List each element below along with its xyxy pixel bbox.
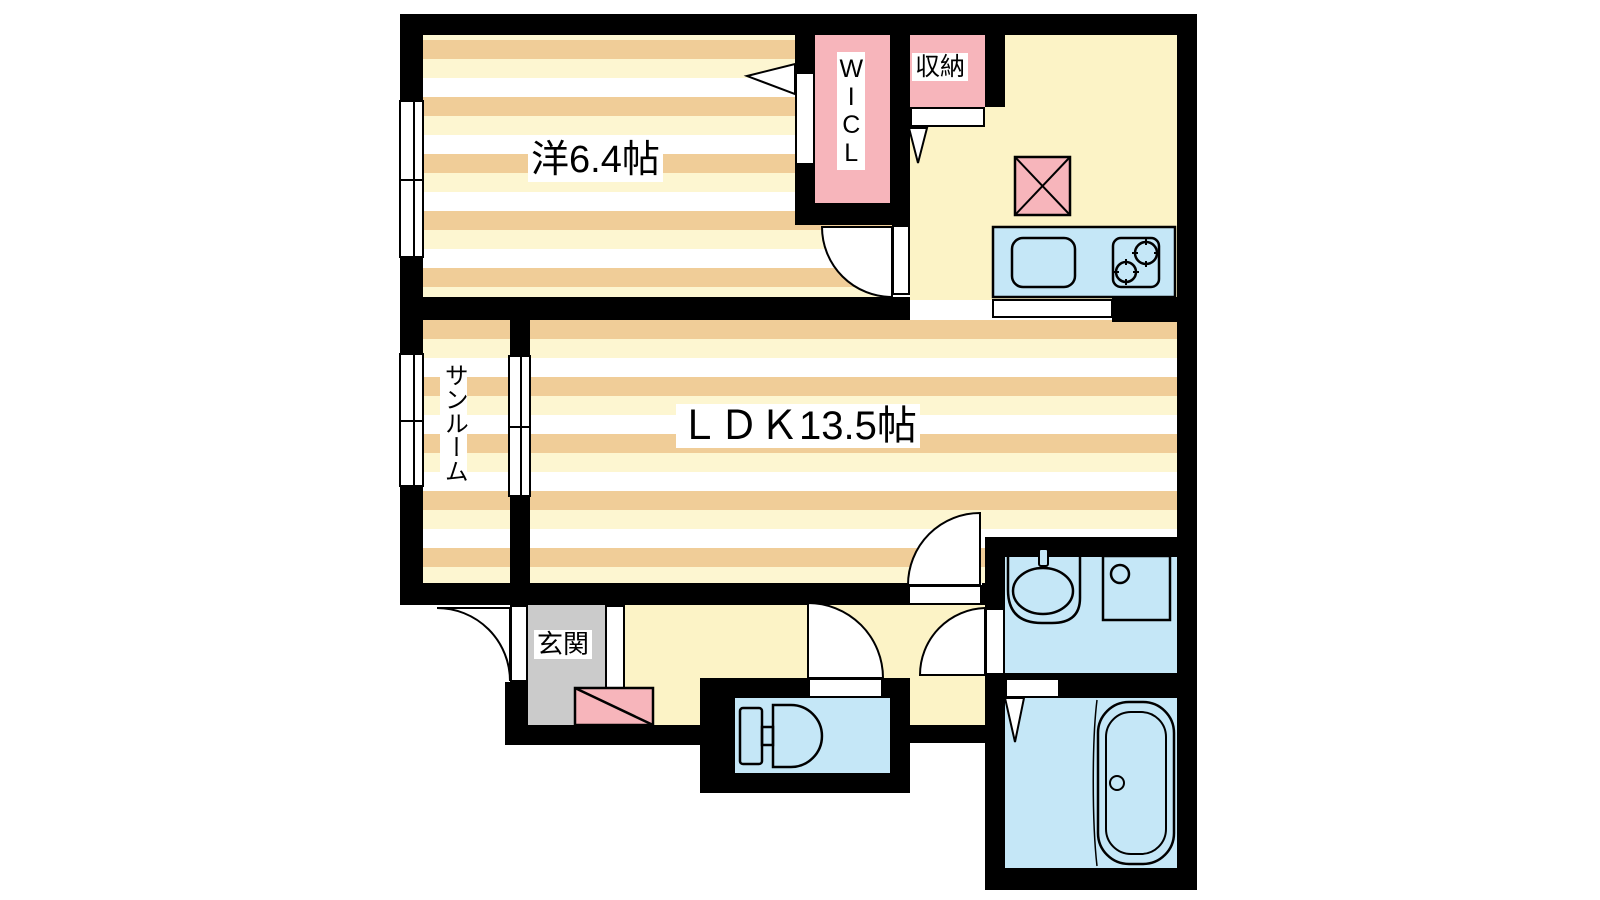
hallway-floor-alcove [910,678,985,725]
bedroom-window-icon [399,100,424,258]
storage-label: 収納 [912,53,968,81]
wicl-door-opening [795,72,815,165]
hallway-floor [625,605,985,678]
kitchen-floor-edge [910,300,993,320]
washroom-door-leaf [985,608,1005,675]
ldk-label: ＬＤＫ13.5帖 [676,404,920,448]
wall-alcove-bottom [890,725,1005,743]
wall-counter-stub [1112,297,1177,322]
storage-door-opening [910,107,985,127]
entrance-door-swing-icon [437,608,510,681]
bedroom-door-leaf [892,225,910,295]
wall-washroom-left [985,557,1005,608]
wall-right [1177,14,1197,890]
bathroom-floor [1005,698,1177,868]
wall-toilet-bottom [700,773,910,793]
wall-wicl-right [890,14,910,225]
wall-washroom-top [985,537,1197,557]
entrance-label: 玄関 [534,630,592,659]
bedroom-label: 洋6.4帖 [528,140,663,182]
entrance-floor [528,605,605,725]
sunroom-label: サンルーム [440,360,467,486]
window-meeting-rail [510,426,529,428]
washroom-floor [1005,557,1177,673]
hallway-floor-west [625,678,700,725]
window-meeting-rail [401,420,422,422]
sunroom-window-icon [399,353,424,487]
wall-storage-right [985,14,1005,107]
toilet-floor [735,698,890,773]
entrance-door-leaf [510,605,528,682]
toilet-door-leaf [808,678,883,698]
floor-plan: 洋6.4帖 ＬＤＫ13.5帖 WICL 収納 サンルーム 玄関 [0,0,1600,900]
wall-entrance-bottom [505,725,705,745]
wall-bathroom-bottom [985,868,1197,890]
wall-entrance-left [505,682,528,725]
ldk-hall-door-leaf [908,585,982,605]
wall-ldk-bottom [400,583,908,605]
bathroom-door-opening [1005,678,1060,698]
wall-bedroom-bottom [400,297,910,320]
entrance-hall-opening [605,605,625,690]
wicl-label: WICL [837,52,865,170]
sunroom-ldk-window-icon [508,355,531,497]
window-meeting-rail [401,179,422,181]
